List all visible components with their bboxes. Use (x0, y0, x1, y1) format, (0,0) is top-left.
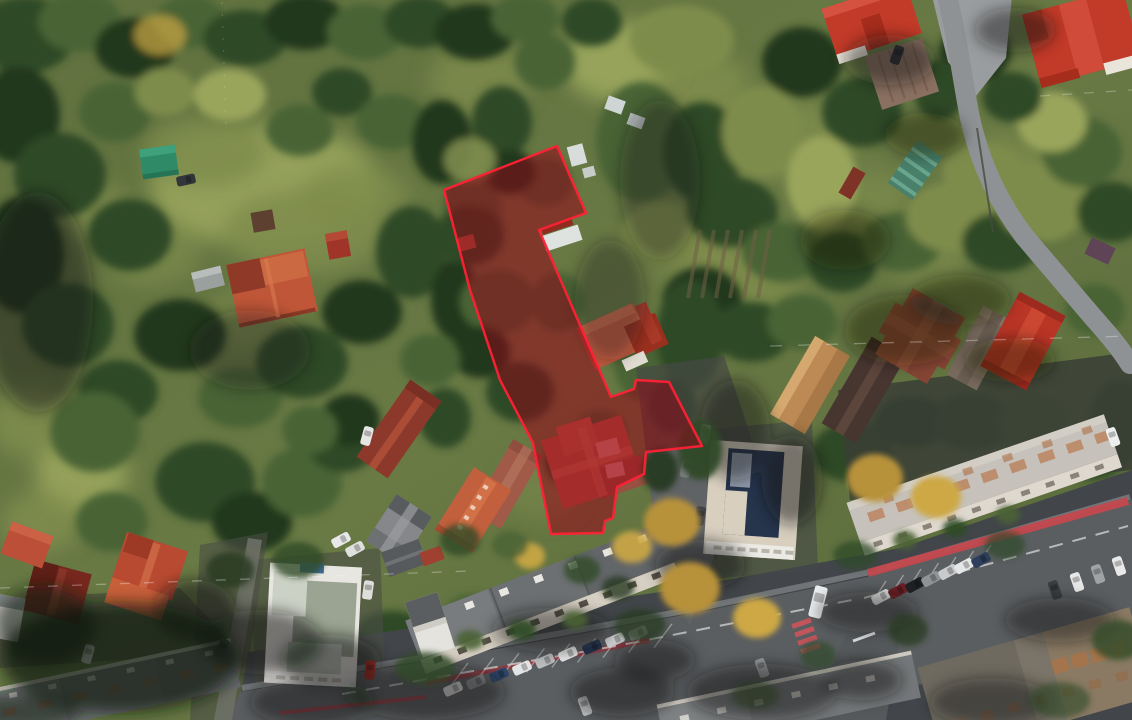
tree (1030, 682, 1090, 718)
tree (943, 519, 967, 537)
roof-part (723, 490, 748, 535)
roof-detail (276, 675, 285, 679)
map-viewport[interactable] (0, 0, 1132, 720)
shadow (155, 580, 235, 640)
shadow (615, 640, 695, 680)
tree (134, 15, 186, 55)
shadow (620, 100, 700, 260)
tree (515, 34, 575, 90)
tree (911, 476, 961, 518)
shadow (975, 8, 1055, 52)
tree (630, 5, 734, 75)
tree (642, 448, 678, 492)
shadow (910, 275, 1010, 325)
tree (50, 392, 140, 472)
tree (282, 406, 338, 454)
tree (888, 614, 928, 646)
tree (88, 199, 172, 271)
building-brown-hut (250, 209, 275, 233)
tree (893, 531, 917, 549)
shadow (800, 210, 890, 270)
roof-detail (773, 550, 781, 555)
shadow (965, 338, 1055, 382)
tree (644, 498, 700, 546)
tree (660, 562, 720, 614)
tree (135, 68, 195, 116)
tree (985, 531, 1025, 559)
tree (833, 541, 877, 569)
tree (508, 620, 536, 640)
tree (612, 531, 652, 563)
tree (395, 652, 455, 684)
tree (762, 27, 842, 97)
tree (982, 72, 1042, 122)
tree (562, 0, 622, 46)
shadow (885, 113, 965, 157)
building-teal-shed (139, 145, 179, 180)
shadow (190, 310, 310, 390)
shadow (280, 635, 380, 685)
tree (614, 609, 666, 641)
satellite-imagery[interactable] (0, 0, 1132, 720)
tree (266, 104, 334, 156)
roof-detail (737, 547, 745, 552)
tree (456, 630, 484, 650)
tree (206, 552, 254, 588)
tree (194, 69, 266, 121)
tree (847, 454, 903, 502)
shadow (845, 35, 935, 85)
roof-detail (761, 549, 769, 554)
roof-detail (749, 548, 757, 553)
tree (322, 280, 402, 344)
tree (562, 611, 588, 629)
tree (272, 542, 324, 578)
tree (800, 641, 836, 669)
tree (767, 294, 837, 350)
shadow (762, 435, 822, 525)
roof-detail (785, 550, 793, 555)
tree (564, 556, 600, 584)
building-red-shed (325, 230, 351, 259)
tree (602, 576, 634, 600)
roof-part (250, 209, 275, 233)
tree (731, 681, 779, 709)
tree (440, 524, 480, 556)
tree (400, 334, 460, 386)
shadow (822, 660, 902, 700)
tree (492, 531, 528, 559)
tree (996, 506, 1020, 524)
tree (733, 598, 781, 638)
